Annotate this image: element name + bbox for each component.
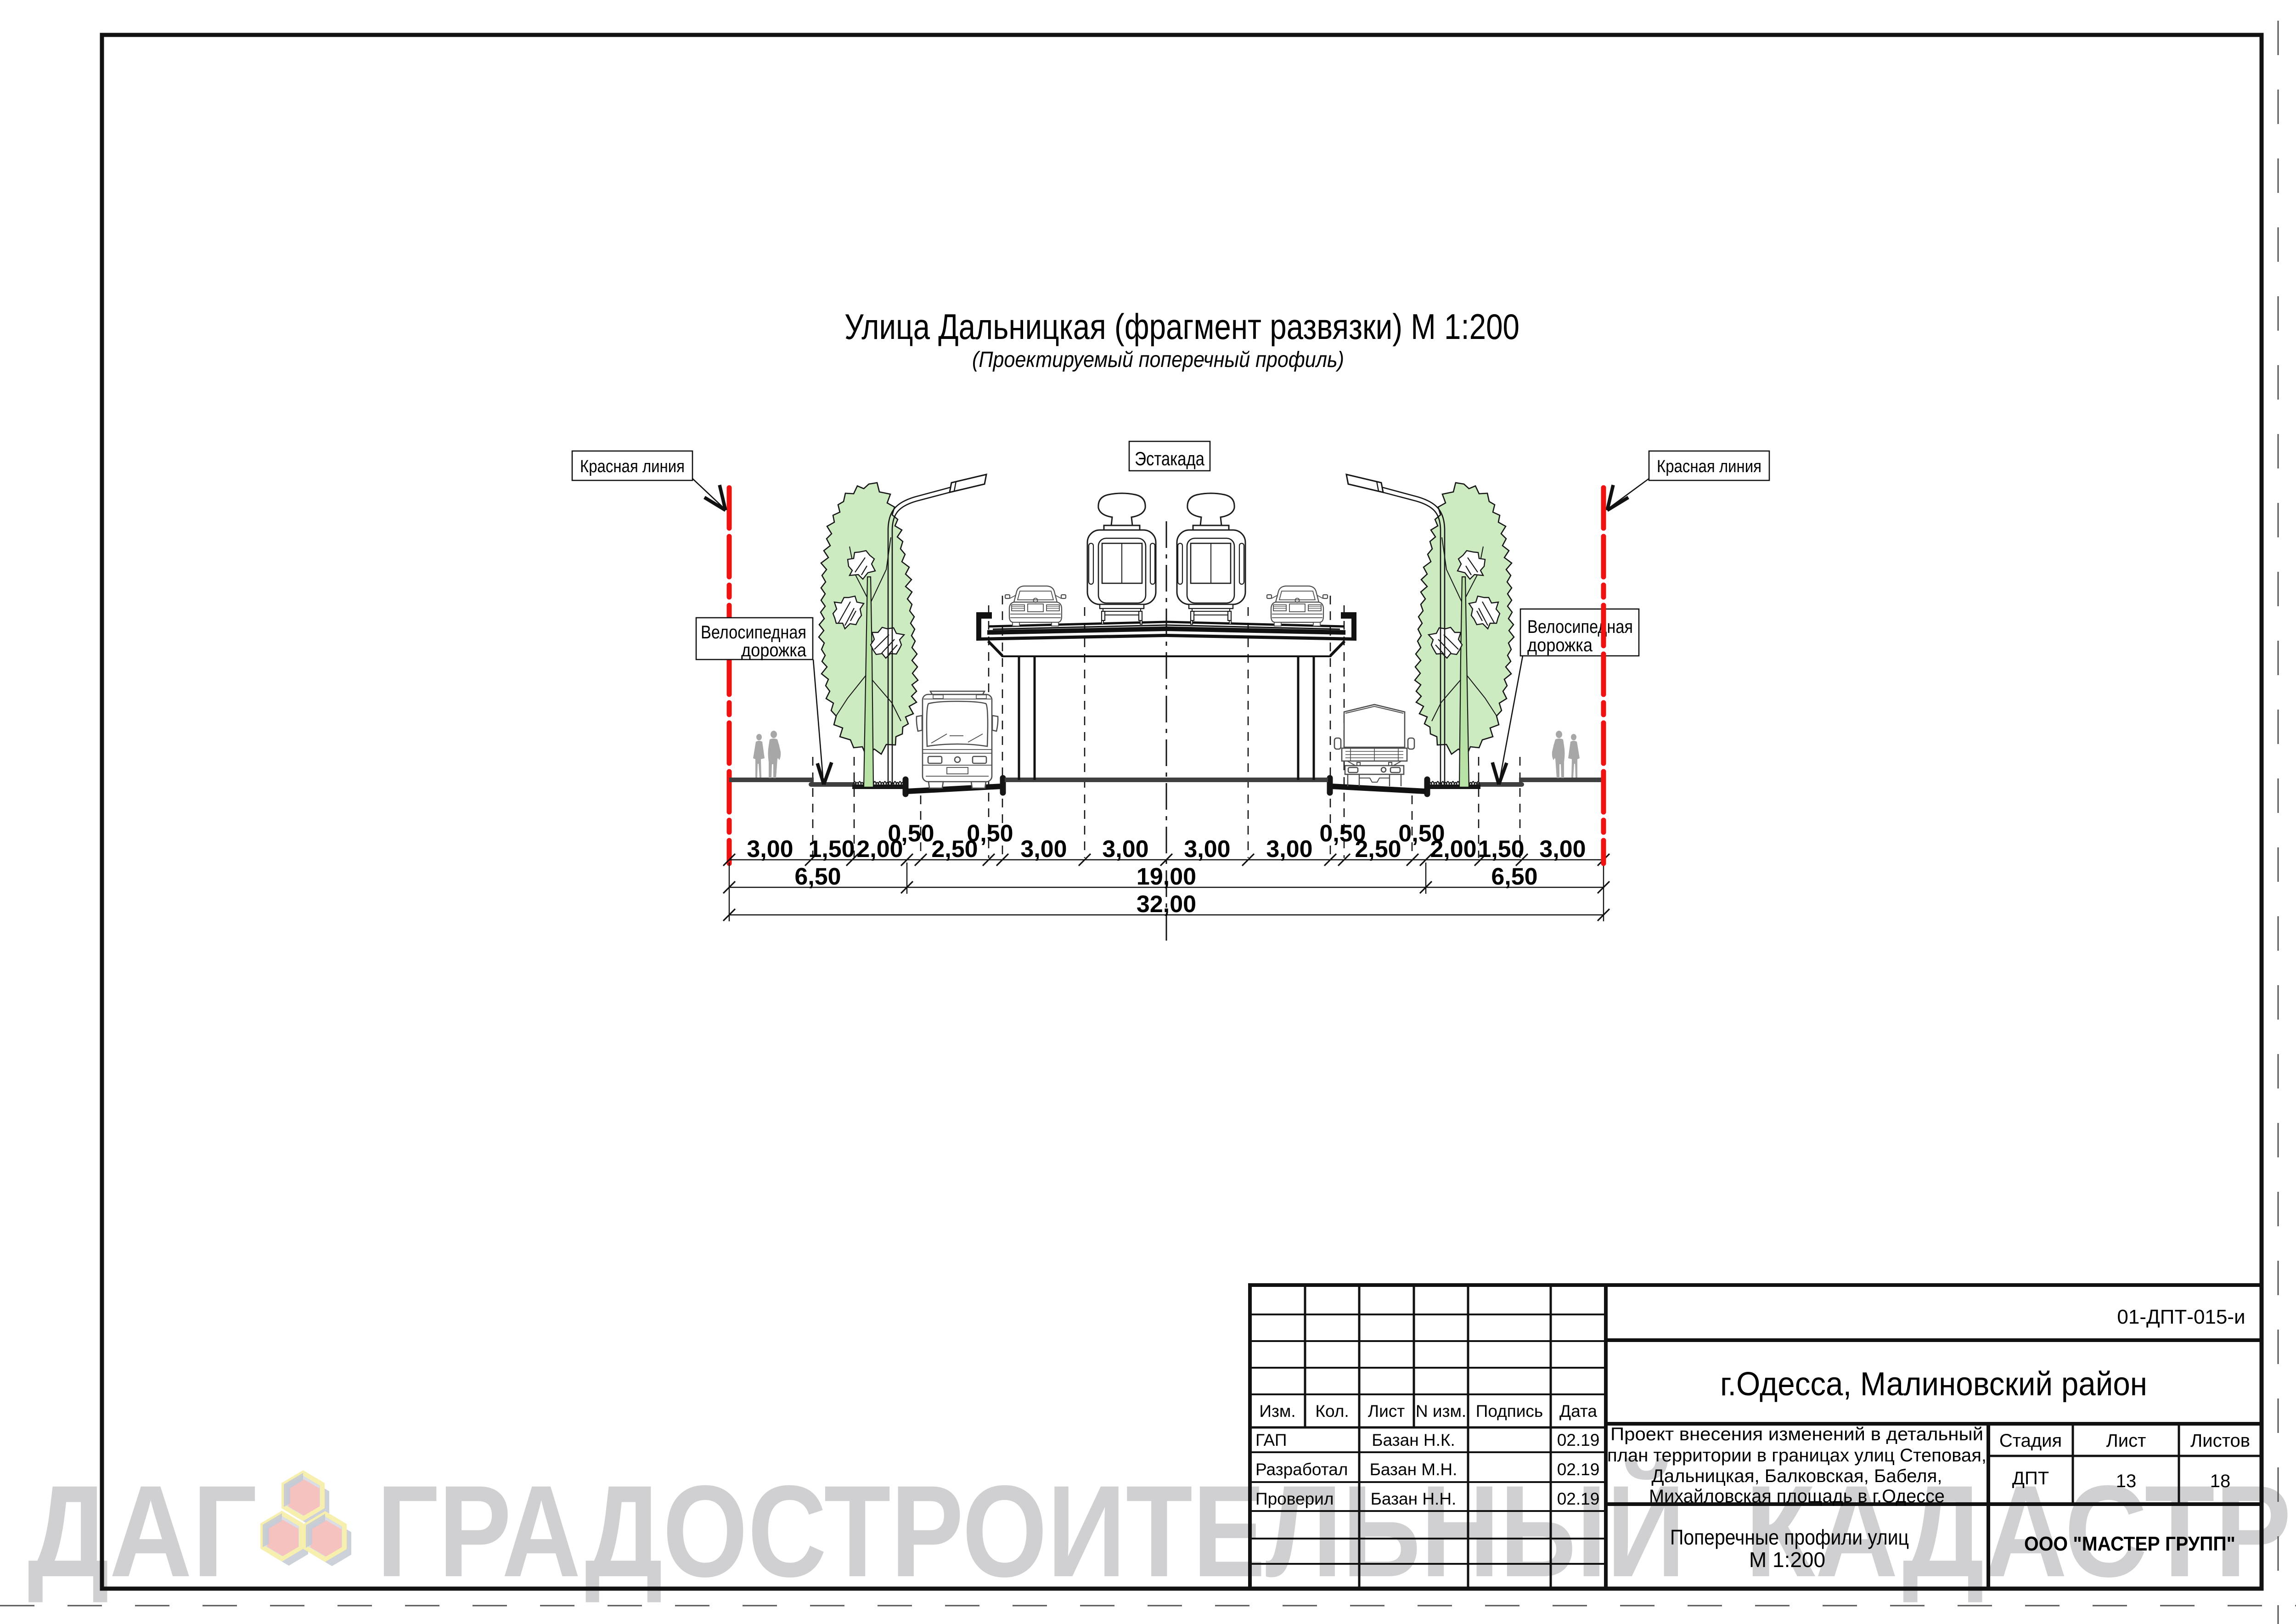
svg-text:Велосипедная: Велосипедная bbox=[1527, 617, 1633, 637]
svg-text:Листов: Листов bbox=[2190, 1431, 2250, 1451]
svg-text:6,50: 6,50 bbox=[1491, 863, 1537, 890]
svg-text:Подпись: Подпись bbox=[1476, 1402, 1543, 1421]
svg-text:Эстакада: Эстакада bbox=[1135, 448, 1205, 469]
svg-text:01-ДПТ-015-и: 01-ДПТ-015-и bbox=[2117, 1306, 2245, 1328]
svg-text:г.Одесса, Малиновский район: г.Одесса, Малиновский район bbox=[1720, 1366, 2147, 1403]
svg-text:ГАП: ГАП bbox=[1255, 1431, 1287, 1449]
svg-text:0,50: 0,50 bbox=[1319, 820, 1366, 847]
svg-text:3,00: 3,00 bbox=[1102, 836, 1148, 863]
svg-text:ГРАДОСТРОИТЕЛЬНЫЙ: ГРАДОСТРОИТЕЛЬНЫЙ bbox=[377, 1458, 1685, 1604]
svg-text:Красная линия: Красная линия bbox=[1657, 457, 1761, 476]
svg-text:1,50: 1,50 bbox=[1478, 836, 1524, 863]
svg-text:0,50: 0,50 bbox=[1398, 820, 1445, 847]
svg-text:Кол.: Кол. bbox=[1315, 1402, 1349, 1421]
svg-text:02.19: 02.19 bbox=[1557, 1460, 1600, 1479]
svg-text:6,50: 6,50 bbox=[794, 863, 841, 890]
svg-text:Велосипедная: Велосипедная bbox=[701, 622, 806, 643]
svg-text:Изм.: Изм. bbox=[1259, 1402, 1295, 1421]
svg-text:Лист: Лист bbox=[1368, 1402, 1405, 1421]
svg-text:Дата: Дата bbox=[1559, 1402, 1597, 1421]
svg-text:18: 18 bbox=[2210, 1471, 2231, 1491]
svg-text:1,50: 1,50 bbox=[808, 836, 855, 863]
svg-text:Проект внесения изменений в де: Проект внесения изменений в детальный bbox=[1610, 1424, 1983, 1444]
svg-text:3,00: 3,00 bbox=[1539, 836, 1586, 863]
svg-text:3,00: 3,00 bbox=[1020, 836, 1067, 863]
svg-text:0,50: 0,50 bbox=[888, 820, 934, 847]
svg-text:Красная линия: Красная линия bbox=[580, 457, 685, 476]
svg-text:Разработал: Разработал bbox=[1255, 1460, 1348, 1479]
svg-text:Лист: Лист bbox=[2106, 1431, 2146, 1451]
svg-text:ООО "МАСТЕР ГРУПП": ООО "МАСТЕР ГРУПП" bbox=[2024, 1533, 2235, 1555]
svg-text:3,00: 3,00 bbox=[747, 836, 793, 863]
svg-text:N изм.: N изм. bbox=[1416, 1402, 1466, 1421]
svg-text:М 1:200: М 1:200 bbox=[1749, 1548, 1825, 1572]
svg-text:ДАГ: ДАГ bbox=[28, 1459, 257, 1604]
svg-text:Улица Дальницкая (фрагмент раз: Улица Дальницкая (фрагмент развязки) М 1… bbox=[844, 306, 1519, 347]
svg-text:дорожка: дорожка bbox=[1527, 635, 1593, 655]
svg-text:3,00: 3,00 bbox=[1184, 836, 1230, 863]
svg-text:ДПТ: ДПТ bbox=[2012, 1468, 2049, 1489]
svg-text:13: 13 bbox=[2116, 1471, 2137, 1491]
svg-text:3,00: 3,00 bbox=[1266, 836, 1312, 863]
svg-text:Стадия: Стадия bbox=[1999, 1431, 2062, 1451]
svg-text:0,50: 0,50 bbox=[967, 820, 1013, 847]
svg-text:Базан Н.К.: Базан Н.К. bbox=[1372, 1431, 1455, 1449]
svg-text:дорожка: дорожка bbox=[741, 640, 807, 660]
svg-text:02.19: 02.19 bbox=[1557, 1431, 1600, 1449]
svg-text:Михайловская площадь в г.Одесс: Михайловская площадь в г.Одессе bbox=[1649, 1486, 1945, 1506]
svg-text:32,00: 32,00 bbox=[1137, 891, 1196, 918]
svg-text:02.19: 02.19 bbox=[1557, 1489, 1600, 1508]
svg-text:Базан Н.Н.: Базан Н.Н. bbox=[1371, 1489, 1457, 1508]
svg-text:Дальницкая, Балковская, Бабеля: Дальницкая, Балковская, Бабеля, bbox=[1652, 1466, 1942, 1486]
svg-text:Проверил: Проверил bbox=[1255, 1489, 1334, 1508]
svg-text:Поперечные профили улиц: Поперечные профили улиц bbox=[1670, 1525, 1909, 1549]
svg-text:19,00: 19,00 bbox=[1137, 863, 1196, 890]
svg-text:Базан М.Н.: Базан М.Н. bbox=[1370, 1460, 1458, 1479]
svg-text:(Проектируемый поперечный проф: (Проектируемый поперечный профиль) bbox=[972, 348, 1344, 372]
svg-text:план территории в границах ули: план территории в границах улиц Степовая… bbox=[1607, 1445, 1986, 1466]
